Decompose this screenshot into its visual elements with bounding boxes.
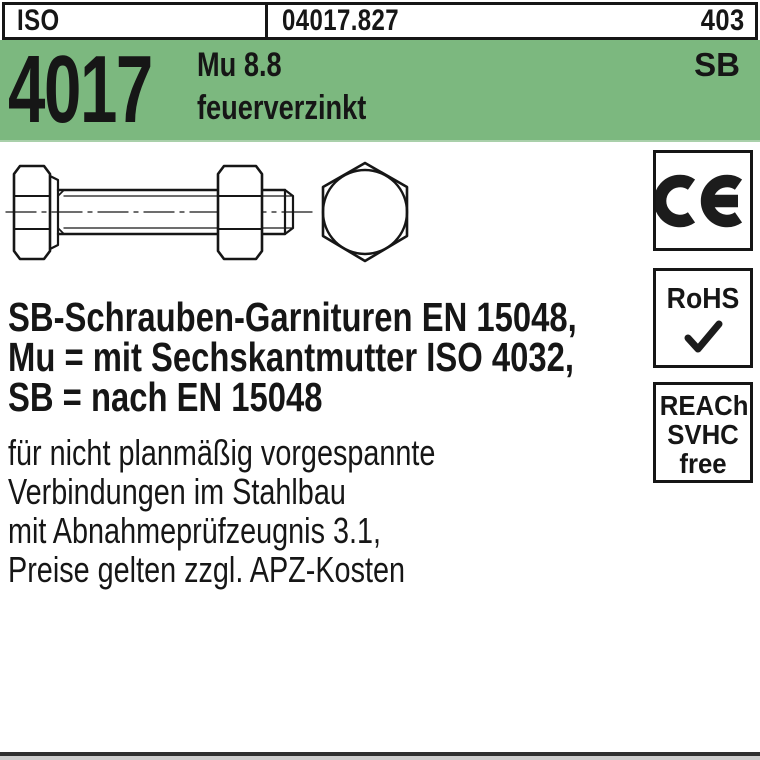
hex-nut — [218, 166, 262, 259]
page-number: 403 — [701, 4, 745, 38]
ce-mark-icon — [656, 161, 750, 241]
standard-number: 4017 — [8, 44, 152, 136]
description-line-1: für nicht planmäßig vorgespannte — [8, 434, 435, 472]
article-number: 04017.827 — [282, 4, 399, 38]
standard-org-label: ISO — [17, 4, 60, 38]
reach-svhc-badge: REACh SVHC free — [653, 382, 753, 483]
sb-mark: SB — [694, 46, 740, 84]
description-bold-line-1: SB-Schrauben-Garnituren EN 15048, — [8, 297, 577, 337]
reach-line-3: free — [660, 449, 746, 478]
description-bold-line-3: SB = nach EN 15048 — [8, 377, 323, 417]
bolt-technical-drawing — [0, 150, 440, 275]
reach-line-2: SVHC — [660, 420, 746, 449]
description-line-4: Preise gelten zzgl. APZ-Kosten — [8, 551, 405, 589]
description-line-2: Verbindungen im Stahlbau — [8, 473, 346, 511]
hexagon-end-view — [323, 163, 407, 261]
reach-line-1: REACh — [660, 391, 746, 420]
finish-label: feuerverzinkt — [197, 87, 366, 130]
iso-label-box: ISO — [2, 2, 268, 40]
ce-mark-badge — [653, 150, 753, 251]
across-flats-circle — [323, 170, 407, 254]
bottom-divider-shadow — [0, 756, 760, 760]
spec-block: Mu 8.8 feuerverzinkt — [197, 44, 409, 130]
description-bold-line-2: Mu = mit Sechskantmutter ISO 4032, — [8, 337, 574, 377]
material-grade: Mu 8.8 — [197, 44, 282, 87]
article-number-box: 04017.827 403 — [265, 2, 758, 40]
description-line-3: mit Abnahmeprüfzeugnis 3.1, — [8, 512, 381, 550]
